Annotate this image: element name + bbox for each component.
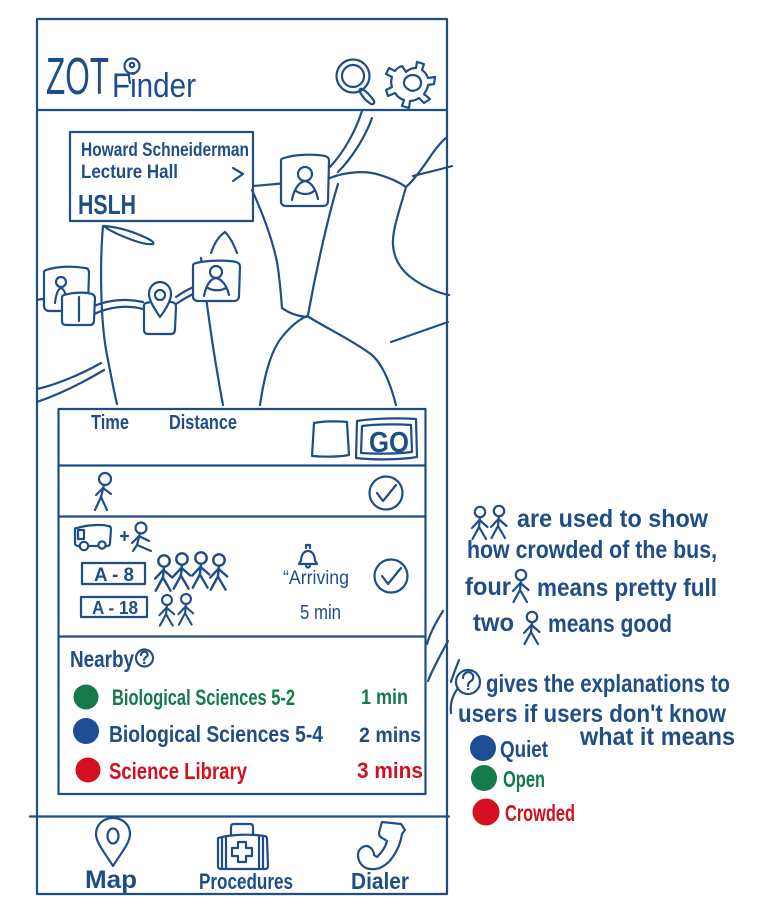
svg-text:how crowded of the bus,: how crowded of the bus,: [467, 536, 717, 564]
svg-text:2 mins: 2 mins: [359, 724, 421, 747]
svg-text:3 mins: 3 mins: [357, 758, 423, 783]
svg-text:A - 18: A - 18: [92, 598, 138, 618]
svg-text:Lecture Hall: Lecture Hall: [81, 162, 178, 183]
svg-text:Procedures: Procedures: [199, 869, 293, 894]
svg-text:ZOT: ZOT: [46, 48, 109, 106]
svg-text:Quiet: Quiet: [500, 736, 548, 762]
svg-text:Open: Open: [503, 766, 545, 792]
svg-text:Crowded: Crowded: [505, 800, 575, 826]
svg-text:Biological Sciences 5-4: Biological Sciences 5-4: [109, 721, 323, 747]
svg-text:A - 8: A - 8: [94, 565, 134, 586]
svg-text:HSLH: HSLH: [78, 189, 136, 220]
svg-text:Finder: Finder: [112, 67, 196, 105]
svg-text:four: four: [465, 573, 511, 601]
svg-text:Map: Map: [85, 866, 137, 894]
svg-text:1 min: 1 min: [361, 686, 408, 709]
svg-text:Nearby: Nearby: [70, 646, 134, 672]
svg-text:Biological Sciences 5-2: Biological Sciences 5-2: [112, 685, 295, 710]
svg-text:“Arriving: “Arriving: [283, 568, 349, 589]
svg-text:Time: Time: [91, 412, 129, 434]
svg-text:what it means: what it means: [579, 723, 735, 751]
svg-text:GO: GO: [369, 427, 409, 459]
svg-text:means good: means good: [548, 610, 672, 638]
svg-text:5 min: 5 min: [300, 602, 341, 624]
svg-text:Distance: Distance: [169, 412, 237, 434]
svg-text:means pretty full: means pretty full: [537, 574, 717, 602]
svg-text:Dialer: Dialer: [351, 868, 409, 894]
svg-text:Science Library: Science Library: [109, 758, 247, 784]
svg-text:gives the explanations to: gives the explanations to: [486, 670, 730, 698]
svg-text:two: two: [473, 609, 514, 637]
svg-text:are used to show: are used to show: [517, 505, 709, 533]
svg-text:Howard Schneiderman: Howard Schneiderman: [81, 140, 249, 161]
